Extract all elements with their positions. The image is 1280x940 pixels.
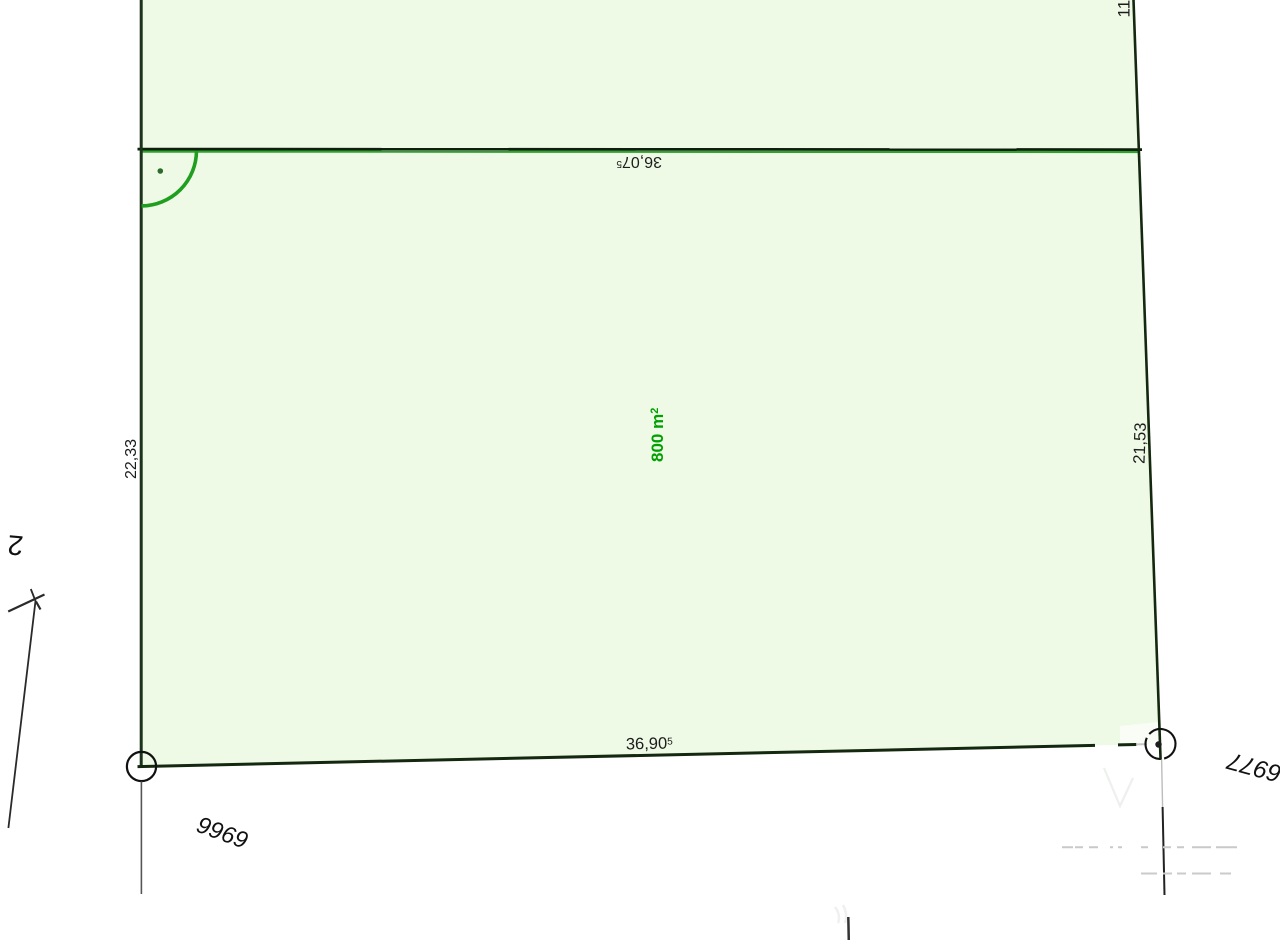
svg-text:11,2: 11,2	[1115, 0, 1134, 18]
svg-text:36,075: 36,075	[616, 153, 662, 170]
svg-text:2: 2	[6, 529, 24, 561]
svg-text:21,53: 21,53	[1131, 422, 1150, 464]
svg-text:22,33: 22,33	[123, 439, 140, 479]
svg-text:800 m2: 800 m2	[648, 408, 667, 462]
svg-text:36,905: 36,905	[626, 734, 674, 753]
